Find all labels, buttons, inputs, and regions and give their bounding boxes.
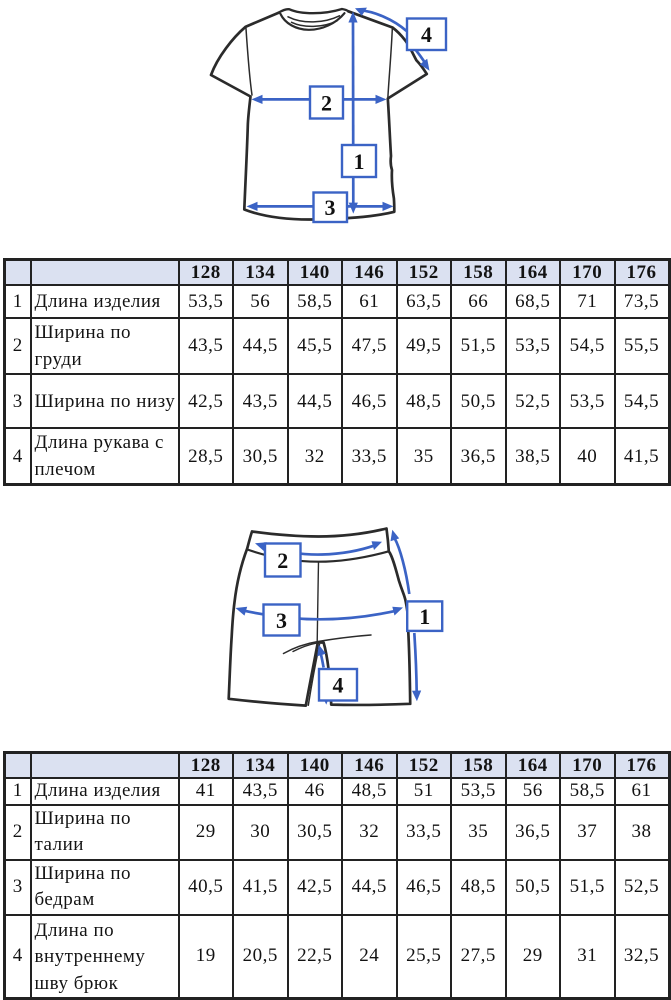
svg-text:1: 1 — [354, 149, 365, 174]
svg-text:1: 1 — [419, 604, 430, 629]
svg-text:2: 2 — [277, 548, 288, 573]
svg-text:4: 4 — [421, 22, 432, 47]
svg-text:3: 3 — [325, 195, 336, 220]
svg-text:4: 4 — [333, 673, 344, 698]
svg-text:3: 3 — [276, 608, 287, 633]
svg-text:2: 2 — [321, 91, 332, 116]
